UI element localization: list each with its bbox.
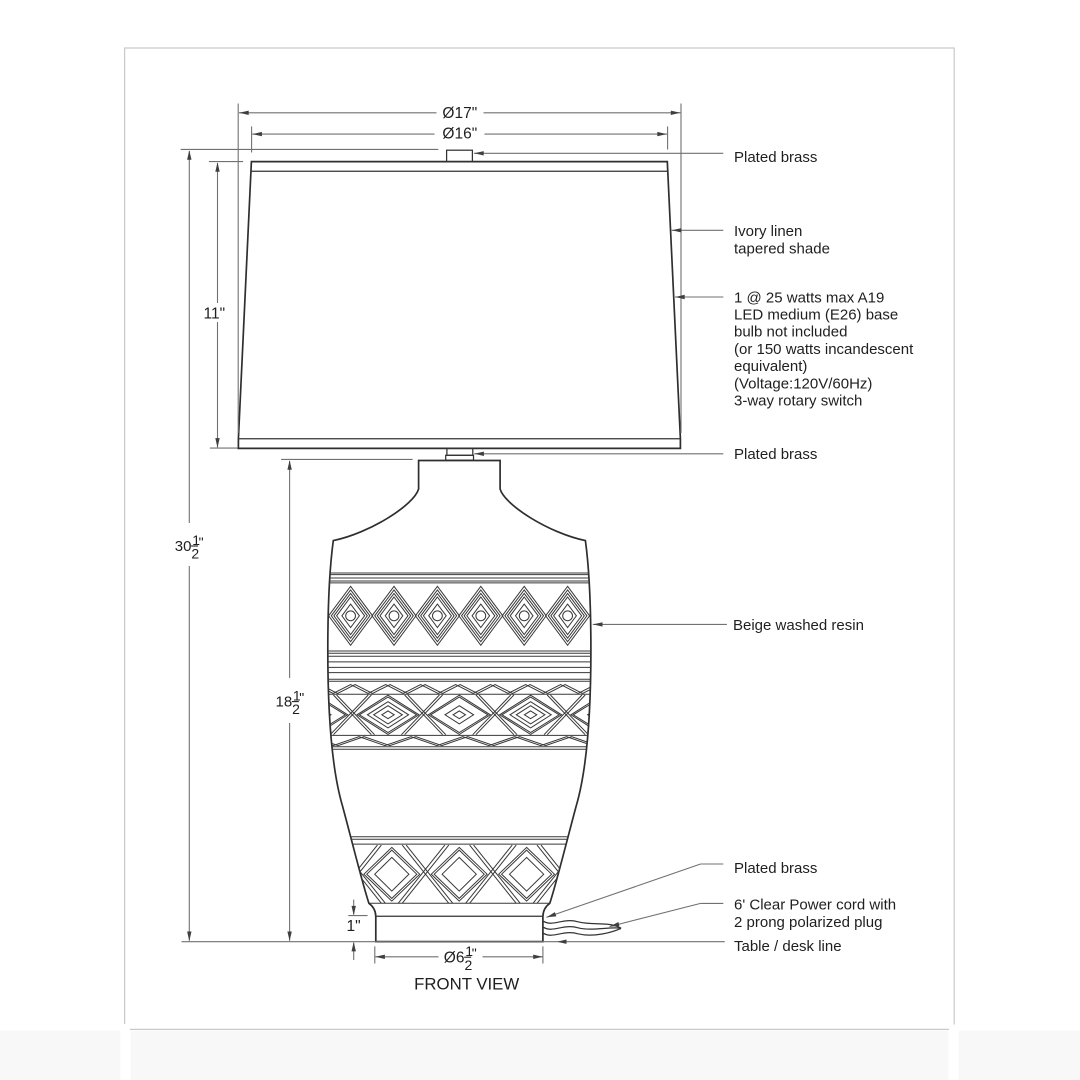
svg-text:Table / desk line: Table / desk line (734, 938, 842, 955)
svg-text:": " (472, 945, 477, 961)
svg-text:(or 150 watts incandescent: (or 150 watts incandescent (734, 341, 914, 358)
svg-text:Ø16": Ø16" (442, 126, 477, 143)
svg-text:tapered shade: tapered shade (734, 241, 830, 258)
svg-text:Plated brass: Plated brass (734, 860, 817, 877)
svg-text:Ø17": Ø17" (442, 105, 477, 122)
svg-text:1": 1" (347, 918, 361, 935)
svg-text:": " (299, 690, 304, 706)
svg-text:2 prong polarized plug: 2 prong polarized plug (734, 914, 882, 931)
svg-text:LED medium (E26) base: LED medium (E26) base (734, 307, 898, 324)
svg-text:(Voltage:120V/60Hz): (Voltage:120V/60Hz) (734, 375, 872, 392)
svg-text:18: 18 (276, 694, 293, 711)
svg-text:3-way rotary switch: 3-way rotary switch (734, 393, 862, 410)
svg-text:1 @ 25 watts max A19: 1 @ 25 watts max A19 (734, 289, 884, 306)
svg-text:bulb not included: bulb not included (734, 324, 847, 341)
svg-text:6' Clear Power cord with: 6' Clear Power cord with (734, 897, 896, 914)
svg-text:Ø6: Ø6 (444, 949, 465, 966)
svg-text:Plated brass: Plated brass (734, 149, 817, 166)
svg-text:Beige washed resin: Beige washed resin (733, 617, 864, 634)
svg-text:Ivory linen: Ivory linen (734, 223, 802, 240)
svg-text:equivalent): equivalent) (734, 358, 807, 375)
svg-text:11": 11" (204, 306, 226, 323)
svg-text:30: 30 (175, 538, 192, 555)
svg-text:Plated brass: Plated brass (734, 446, 817, 463)
svg-text:": " (199, 534, 204, 550)
svg-text:FRONT VIEW: FRONT VIEW (414, 974, 519, 993)
